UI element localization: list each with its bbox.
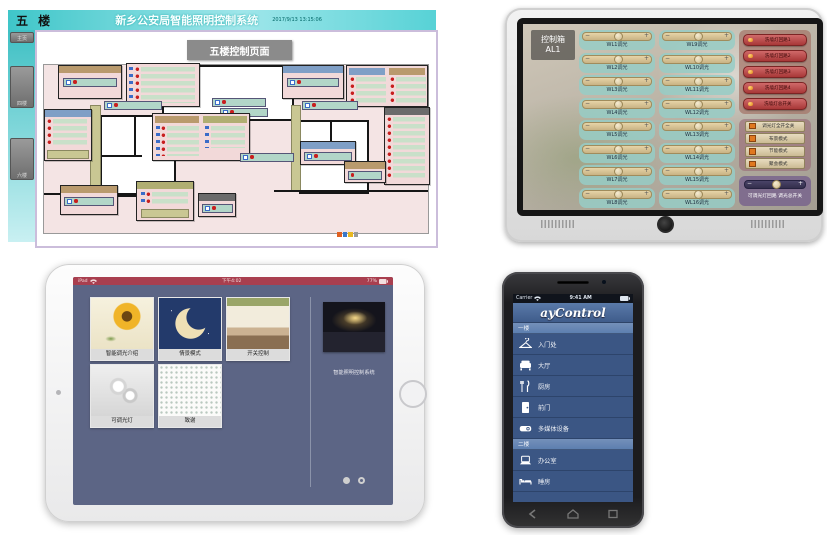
mode-button-label: 聚会模式 bbox=[759, 161, 799, 167]
status-led-icon bbox=[351, 173, 354, 176]
circuit-button-label: 洗墙灯回路1 bbox=[756, 37, 801, 43]
led-column bbox=[135, 67, 140, 103]
theater-image bbox=[323, 302, 385, 352]
minus-icon[interactable]: − bbox=[585, 77, 590, 84]
panel-header bbox=[155, 116, 199, 123]
slider-knob-icon[interactable] bbox=[694, 77, 703, 86]
dimmer-column-2: − + WL9调光 − + WL10调光 bbox=[659, 30, 735, 208]
slider-knob-icon[interactable] bbox=[694, 122, 703, 131]
checkbox-icon[interactable] bbox=[305, 103, 310, 108]
plus-icon[interactable]: + bbox=[724, 190, 729, 197]
checkbox-icon[interactable] bbox=[307, 154, 312, 159]
panel-header bbox=[203, 116, 247, 123]
slider-knob-icon[interactable] bbox=[614, 55, 623, 64]
list-item-label: 办公室 bbox=[538, 456, 557, 465]
list-item-bedroom[interactable]: 睡房 bbox=[513, 471, 633, 492]
control-panel[interactable] bbox=[60, 185, 118, 215]
circuit-row-list bbox=[141, 67, 195, 103]
list-item-label: 多媒体设备 bbox=[538, 424, 569, 433]
circuit-button[interactable]: 洗墙灯回路4 bbox=[743, 82, 807, 94]
scene-mode-group: 调光灯全开全关 布景模式 节能模式 聚会模式 bbox=[739, 119, 811, 171]
control-panel[interactable] bbox=[282, 65, 344, 99]
floor-plan-wall bbox=[274, 190, 428, 192]
panel-row bbox=[304, 152, 352, 161]
battery-icon bbox=[620, 296, 630, 301]
control-panel[interactable] bbox=[346, 65, 428, 107]
status-led-icon bbox=[312, 103, 315, 106]
plus-icon[interactable]: + bbox=[644, 32, 649, 39]
checkbox-icon[interactable] bbox=[749, 161, 756, 168]
touch-panel-screen: 控制箱 AL1 − + WL1调光 − bbox=[517, 18, 823, 216]
camera-icon bbox=[602, 280, 606, 284]
dimmer-slider[interactable]: − + bbox=[582, 100, 652, 109]
projector-icon bbox=[519, 422, 532, 435]
minus-icon[interactable]: − bbox=[665, 100, 670, 107]
checkbox-column[interactable] bbox=[205, 126, 209, 148]
laptop-icon bbox=[519, 454, 532, 467]
dimmer-channel: − + WL13调光 bbox=[659, 120, 735, 140]
indicator-led-icon bbox=[748, 38, 753, 43]
master-dimmer-group: − + 可调光灯回路 调光总开关 bbox=[739, 176, 811, 206]
app-header: ayControl bbox=[513, 303, 633, 323]
panel-row bbox=[202, 204, 233, 213]
control-panel[interactable] bbox=[58, 65, 122, 99]
circuit-button[interactable]: 洗墙灯回路2 bbox=[743, 50, 807, 62]
dimmer-slider[interactable]: − + bbox=[662, 190, 732, 199]
inline-control-strip bbox=[302, 101, 358, 110]
plus-icon[interactable]: + bbox=[724, 100, 729, 107]
ime-icon bbox=[343, 232, 348, 237]
dimmer-label: WL7调光 bbox=[582, 176, 652, 184]
hanger-icon bbox=[519, 338, 532, 351]
statusbar-time: 9:41 AM bbox=[570, 296, 592, 301]
minus-icon[interactable]: − bbox=[585, 145, 590, 152]
plus-icon[interactable]: + bbox=[644, 77, 649, 84]
panel-header bbox=[389, 68, 425, 75]
circuit-row-list bbox=[356, 77, 386, 104]
checkbox-column[interactable] bbox=[156, 126, 160, 156]
dimmer-slider[interactable]: − + bbox=[662, 122, 732, 131]
circuit-row-list bbox=[152, 192, 188, 206]
minus-icon[interactable]: − bbox=[585, 167, 590, 174]
minus-icon[interactable]: − bbox=[665, 55, 670, 62]
panel-footer bbox=[141, 209, 189, 218]
ime-icon bbox=[348, 232, 353, 237]
ime-icon bbox=[337, 232, 342, 237]
list-item-label: 睡房 bbox=[538, 477, 550, 486]
mode-button-label: 布景模式 bbox=[759, 136, 799, 142]
dimmer-channel: − + WL14调光 bbox=[659, 143, 735, 163]
dimmer-slider[interactable]: − + bbox=[662, 32, 732, 41]
floor-plan-wall bbox=[134, 117, 136, 157]
list-item-front-door[interactable]: 前门 bbox=[513, 397, 633, 418]
window-title: 新乡公安局智能照明控制系统 bbox=[115, 12, 258, 28]
dimmer-slider[interactable]: − + bbox=[662, 100, 732, 109]
status-led-icon bbox=[74, 199, 77, 202]
minus-icon[interactable]: − bbox=[585, 122, 590, 129]
mode-button-label: 调光灯全开全关 bbox=[759, 123, 799, 129]
section-floor-1: 一楼 bbox=[513, 323, 633, 334]
panel-footer bbox=[47, 150, 89, 159]
panel-row bbox=[287, 78, 339, 87]
tile-scene-mode[interactable]: 情景模式 bbox=[158, 297, 222, 361]
slider-knob-icon[interactable] bbox=[772, 180, 781, 189]
dimmer-slider[interactable]: − + bbox=[582, 32, 652, 41]
battery-icon bbox=[379, 279, 388, 284]
dimmer-label: WL9调光 bbox=[662, 41, 732, 49]
circuit-row-list bbox=[393, 117, 425, 179]
checkbox-icon[interactable] bbox=[67, 199, 72, 204]
status-led-icon bbox=[212, 206, 215, 209]
dimmer-slider[interactable]: − + bbox=[582, 190, 652, 199]
minus-icon[interactable]: − bbox=[665, 77, 670, 84]
home-icon[interactable] bbox=[567, 509, 579, 519]
device-chin bbox=[505, 204, 823, 242]
dimmer-channel: − + WL11调光 bbox=[659, 75, 735, 95]
floor-plan bbox=[43, 64, 429, 234]
tile-label: 可调光灯 bbox=[91, 416, 153, 427]
bed-icon bbox=[519, 475, 532, 488]
statusbar-time: 下午4:02 bbox=[222, 278, 242, 284]
ipad-statusbar: iPad 下午4:02 77% bbox=[73, 277, 393, 285]
slider-knob-icon[interactable] bbox=[694, 145, 703, 154]
minus-icon[interactable]: − bbox=[665, 122, 670, 129]
circuit-button-label: 洗墙灯回路3 bbox=[756, 69, 801, 75]
statusbar-carrier: Carrier bbox=[516, 296, 532, 301]
dimmer-channel: − + WL7调光 bbox=[579, 165, 655, 185]
wall-washer-group: 洗墙灯回路1 洗墙灯回路2 洗墙灯回路3 洗墙灯回路4 洗墙灯总开关 bbox=[739, 30, 811, 114]
inline-control-strip bbox=[104, 101, 162, 110]
speaker-grill-icon bbox=[541, 220, 575, 228]
checkbox-icon[interactable] bbox=[243, 155, 248, 160]
circuit-row-list bbox=[53, 119, 87, 147]
control-panel[interactable] bbox=[44, 109, 92, 161]
checkbox-icon[interactable] bbox=[66, 80, 71, 85]
checkbox-icon[interactable] bbox=[107, 103, 112, 108]
panel-header bbox=[137, 182, 193, 189]
circuit-row-list bbox=[211, 126, 245, 148]
slider-knob-icon[interactable] bbox=[694, 100, 703, 109]
dimmer-slider[interactable]: − + bbox=[582, 145, 652, 154]
panel-header bbox=[385, 108, 429, 115]
dimmer-channel: − + WL4调光 bbox=[579, 98, 655, 118]
control-panel[interactable] bbox=[198, 193, 236, 217]
window-titlebar: 五 楼 新乡公安局智能照明控制系统 2017/9/13 13:15:06 bbox=[8, 10, 436, 30]
tile-label: 智能调光介绍 bbox=[91, 349, 153, 360]
slider-knob-icon[interactable] bbox=[694, 55, 703, 64]
indicator-led-icon bbox=[748, 54, 753, 59]
dimmer-label: WL2调光 bbox=[582, 64, 652, 72]
tile-label: 情景模式 bbox=[159, 349, 221, 360]
list-item-label: 厨房 bbox=[538, 382, 550, 391]
inline-control-strip bbox=[212, 98, 266, 107]
dimmer-label: WL13调光 bbox=[662, 131, 732, 139]
camera-icon bbox=[657, 216, 674, 233]
dimmer-channel: − + WL5调光 bbox=[579, 120, 655, 140]
android-navbar bbox=[513, 506, 633, 522]
control-box-label: 控制箱 bbox=[541, 35, 565, 45]
minus-icon[interactable]: − bbox=[665, 32, 670, 39]
led-column bbox=[387, 117, 392, 179]
list-item-label: 入门处 bbox=[538, 340, 557, 349]
tile-label: 致谢 bbox=[159, 416, 221, 427]
floor-plan-canvas: 五楼控制页面 bbox=[35, 30, 438, 248]
dimmer-label: WL4调光 bbox=[582, 109, 652, 117]
panel-header bbox=[199, 194, 235, 201]
tile-theater-preview[interactable] bbox=[323, 302, 385, 352]
kitchen-image bbox=[227, 298, 289, 349]
slider-knob-icon[interactable] bbox=[614, 122, 623, 131]
watermark-icons bbox=[337, 232, 358, 237]
list-item-label: 大厅 bbox=[538, 361, 550, 370]
indicator-led-icon bbox=[748, 102, 753, 107]
flowers-image bbox=[159, 365, 221, 416]
mode-button[interactable]: 聚会模式 bbox=[745, 158, 805, 169]
circuit-row-list bbox=[167, 126, 199, 156]
minus-icon[interactable]: − bbox=[665, 167, 670, 174]
mode-button[interactable]: 布景模式 bbox=[745, 133, 805, 144]
dimmer-channel: − + WL6调光 bbox=[579, 143, 655, 163]
tile-label: 开关控制 bbox=[227, 349, 289, 360]
minus-icon[interactable]: − bbox=[747, 180, 752, 187]
checkbox-icon[interactable] bbox=[749, 135, 756, 142]
system-label: 智能照明控制系统 bbox=[313, 369, 393, 376]
list-item-label: 前门 bbox=[538, 403, 550, 412]
lamp-image bbox=[91, 365, 153, 416]
plus-icon[interactable]: + bbox=[644, 167, 649, 174]
slider-knob-icon[interactable] bbox=[694, 167, 703, 176]
sidebar-floor4-button[interactable]: 四楼 bbox=[10, 66, 34, 108]
tile-switch-control[interactable]: 开关控制 bbox=[226, 297, 290, 361]
control-panel[interactable] bbox=[152, 113, 250, 161]
dimmer-channel: − + WL9调光 bbox=[659, 30, 735, 50]
ime-icon bbox=[354, 232, 359, 237]
sofa-icon bbox=[519, 359, 532, 372]
control-box-id: AL1 bbox=[545, 45, 560, 55]
plus-icon[interactable]: + bbox=[724, 77, 729, 84]
dimmer-label: WL14调光 bbox=[662, 154, 732, 162]
wifi-icon bbox=[90, 279, 97, 284]
utensils-icon bbox=[519, 380, 532, 393]
dimmer-label: WL3调光 bbox=[582, 86, 652, 94]
dimmer-slider[interactable]: − + bbox=[662, 167, 732, 176]
dimmer-slider[interactable]: − + bbox=[662, 77, 732, 86]
tile-intro[interactable]: 智能调光介绍 bbox=[90, 297, 154, 361]
dimmer-slider[interactable]: − + bbox=[662, 145, 732, 154]
control-panel[interactable] bbox=[136, 181, 194, 221]
scada-window: 五 楼 新乡公安局智能照明控制系统 2017/9/13 13:15:06 主页 … bbox=[8, 10, 436, 242]
dimmer-channel: − + WL3调光 bbox=[579, 75, 655, 95]
status-led-icon bbox=[73, 80, 76, 83]
panel-header bbox=[301, 142, 355, 149]
recents-icon[interactable] bbox=[607, 509, 619, 519]
status-led-icon bbox=[250, 155, 253, 158]
circuit-row-list bbox=[396, 77, 426, 104]
dimmer-label: WL1调光 bbox=[582, 41, 652, 49]
floor-nav-sidebar: 主页 四楼 六楼 bbox=[8, 30, 35, 242]
list-item-entrance[interactable]: 入门处 bbox=[513, 334, 633, 355]
tile-dimmable-light[interactable]: 可调光灯 bbox=[90, 364, 154, 428]
ipad-screen: iPad 下午4:02 77% 智能调光介绍 情景模式 开关控制 bbox=[73, 277, 393, 505]
panel-row bbox=[348, 171, 382, 180]
slider-knob-icon[interactable] bbox=[614, 77, 623, 86]
status-led-icon bbox=[297, 80, 300, 83]
floor-plan-wall bbox=[102, 155, 142, 157]
phone-screen: Carrier 9:41 AM ayControl 一楼 入门处 大厅 厨房 bbox=[513, 294, 633, 502]
circuit-button[interactable]: 洗墙灯总开关 bbox=[743, 98, 807, 110]
tile-thanks[interactable]: 致谢 bbox=[158, 364, 222, 428]
plus-icon[interactable]: + bbox=[644, 122, 649, 129]
ipad-device: iPad 下午4:02 77% 智能调光介绍 情景模式 开关控制 bbox=[45, 264, 425, 522]
floor-label: 五 楼 bbox=[16, 12, 53, 29]
panel-header bbox=[45, 110, 91, 117]
plus-icon[interactable]: + bbox=[644, 190, 649, 197]
dimmer-channel: − + WL10调光 bbox=[659, 53, 735, 73]
phone-device: Carrier 9:41 AM ayControl 一楼 入门处 大厅 厨房 bbox=[502, 272, 644, 528]
dimmer-slider[interactable]: − + bbox=[582, 77, 652, 86]
circuit-button-label: 洗墙灯回路4 bbox=[756, 85, 801, 91]
slider-knob-icon[interactable] bbox=[614, 32, 623, 41]
dimmer-slider[interactable]: − + bbox=[582, 167, 652, 176]
checkbox-column[interactable] bbox=[141, 192, 145, 206]
sidebar-floor6-button[interactable]: 六楼 bbox=[10, 138, 34, 180]
minus-icon[interactable]: − bbox=[585, 55, 590, 62]
dimmer-label: WL11调光 bbox=[662, 86, 732, 94]
panel-header bbox=[345, 162, 385, 169]
circuit-button[interactable]: 洗墙灯回路3 bbox=[743, 66, 807, 78]
gear-icon[interactable] bbox=[358, 477, 365, 484]
panel-divider bbox=[310, 297, 311, 487]
minus-icon[interactable]: − bbox=[585, 100, 590, 107]
minus-icon[interactable]: − bbox=[665, 145, 670, 152]
panel-header bbox=[61, 186, 117, 193]
timestamp: 2017/9/13 13:15:06 bbox=[272, 17, 322, 23]
checkbox-icon[interactable] bbox=[215, 100, 220, 105]
screenshot-collage: 五 楼 新乡公安局智能照明控制系统 2017/9/13 13:15:06 主页 … bbox=[0, 0, 827, 535]
panel-header bbox=[283, 66, 343, 73]
slider-knob-icon[interactable] bbox=[614, 145, 623, 154]
circuit-button-label: 洗墙灯回路2 bbox=[756, 53, 801, 59]
slider-knob-icon[interactable] bbox=[614, 100, 623, 109]
indicator-led-icon bbox=[748, 86, 753, 91]
status-led-icon bbox=[114, 103, 117, 106]
slider-knob-icon[interactable] bbox=[694, 190, 703, 199]
sunflower-image bbox=[91, 298, 153, 349]
statusbar-carrier: iPad bbox=[78, 279, 88, 284]
pager-dots bbox=[343, 477, 365, 484]
master-dimmer-slider[interactable]: − + bbox=[744, 180, 806, 189]
speaker-grill-icon bbox=[751, 220, 785, 228]
slider-knob-icon[interactable] bbox=[694, 32, 703, 41]
led-column bbox=[146, 192, 151, 206]
mode-button-label: 节能模式 bbox=[759, 148, 799, 154]
checkbox-icon[interactable] bbox=[290, 80, 295, 85]
panel-header bbox=[349, 68, 385, 75]
phone-statusbar: Carrier 9:41 AM bbox=[513, 294, 633, 303]
circuit-button[interactable]: 洗墙灯回路1 bbox=[743, 34, 807, 46]
dimmer-slider[interactable]: − + bbox=[582, 55, 652, 64]
list-item-office[interactable]: 办公室 bbox=[513, 450, 633, 471]
earpiece-icon bbox=[557, 281, 589, 284]
dimmer-channel: − + WL1调光 bbox=[579, 30, 655, 50]
list-item-kitchen[interactable]: 厨房 bbox=[513, 376, 633, 397]
checkbox-icon[interactable] bbox=[749, 123, 756, 130]
led-column bbox=[47, 119, 52, 147]
back-icon[interactable] bbox=[527, 509, 539, 519]
checkbox-icon[interactable] bbox=[205, 206, 210, 211]
plus-icon[interactable]: + bbox=[724, 167, 729, 174]
dimmer-label: WL12调光 bbox=[662, 109, 732, 117]
moon-image bbox=[159, 298, 221, 349]
indicator-led-icon bbox=[748, 70, 753, 75]
statusbar-battery-pct: 77% bbox=[367, 279, 377, 284]
section-floor-2: 二楼 bbox=[513, 439, 633, 450]
dimmer-channel: − + WL15调光 bbox=[659, 165, 735, 185]
sidebar-home-button[interactable]: 主页 bbox=[10, 32, 34, 43]
inline-control-strip bbox=[240, 153, 294, 162]
dimmer-slider[interactable]: − + bbox=[662, 55, 732, 64]
dimmer-channel: − + WL12调光 bbox=[659, 98, 735, 118]
dimmer-label: WL5调光 bbox=[582, 131, 652, 139]
checkbox-icon[interactable] bbox=[749, 148, 756, 155]
page-dot-icon[interactable] bbox=[343, 477, 350, 484]
camera-icon bbox=[56, 390, 61, 395]
plus-icon[interactable]: + bbox=[724, 145, 729, 152]
plus-icon[interactable]: + bbox=[644, 145, 649, 152]
checkbox-column[interactable] bbox=[129, 67, 133, 103]
plus-icon[interactable]: + bbox=[724, 32, 729, 39]
led-column bbox=[390, 77, 395, 104]
plus-icon[interactable]: + bbox=[798, 180, 803, 187]
list-item-hall[interactable]: 大厅 bbox=[513, 355, 633, 376]
plus-icon[interactable]: + bbox=[644, 55, 649, 62]
panel-header bbox=[59, 66, 121, 73]
plus-icon[interactable]: + bbox=[644, 100, 649, 107]
slider-knob-icon[interactable] bbox=[614, 190, 623, 199]
status-led-icon bbox=[222, 100, 225, 103]
app-title: ayControl bbox=[540, 306, 605, 320]
control-box-tag: 控制箱 AL1 bbox=[531, 30, 575, 60]
master-dimmer-label: 可调光灯回路 调光总开关 bbox=[739, 192, 811, 199]
panel-row bbox=[64, 197, 114, 206]
status-led-icon bbox=[314, 154, 317, 157]
dimmer-label: WL15调光 bbox=[662, 176, 732, 184]
minus-icon[interactable]: − bbox=[585, 190, 590, 197]
touch-panel-device: 控制箱 AL1 − + WL1调光 − bbox=[505, 8, 823, 242]
dimmer-label: WL6调光 bbox=[582, 154, 652, 162]
minus-icon[interactable]: − bbox=[585, 32, 590, 39]
wifi-icon bbox=[534, 296, 541, 301]
dimmer-column-1: − + WL1调光 − + WL2调光 bbox=[579, 30, 655, 208]
page-title: 五楼控制页面 bbox=[187, 40, 292, 60]
slider-knob-icon[interactable] bbox=[614, 167, 623, 176]
control-panel[interactable] bbox=[384, 107, 430, 185]
home-button[interactable] bbox=[399, 380, 427, 408]
mode-button[interactable]: 节能模式 bbox=[745, 146, 805, 157]
plus-icon[interactable]: + bbox=[724, 55, 729, 62]
list-item-multimedia[interactable]: 多媒体设备 bbox=[513, 418, 633, 439]
mode-button[interactable]: 调光灯全开全关 bbox=[745, 121, 805, 132]
control-panel[interactable] bbox=[344, 161, 386, 183]
dimmer-channel: − + WL2调光 bbox=[579, 53, 655, 73]
led-column bbox=[350, 77, 355, 104]
dimmer-slider[interactable]: − + bbox=[582, 122, 652, 131]
led-column bbox=[161, 126, 166, 156]
circuit-button-label: 洗墙灯总开关 bbox=[756, 101, 801, 107]
dimmer-label: WL10调光 bbox=[662, 64, 732, 72]
minus-icon[interactable]: − bbox=[665, 190, 670, 197]
plus-icon[interactable]: + bbox=[724, 122, 729, 129]
